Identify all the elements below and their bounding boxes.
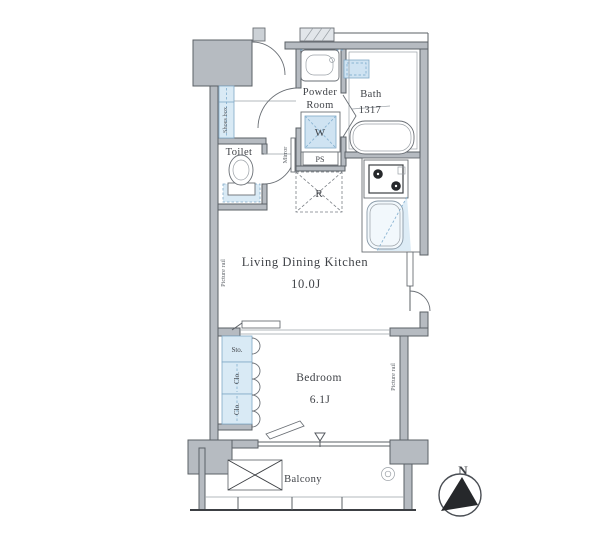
sliding-panel <box>266 421 304 439</box>
storage-label: Sto. <box>231 346 242 354</box>
picture-rail-left-label: Picture rail <box>220 259 227 287</box>
room-label-powder-2: Room <box>306 100 333 111</box>
floorplan-drawing: Shoes box Toilet Mirror Powder Room W <box>0 0 600 533</box>
closet-lower-label: Clo. <box>233 403 241 415</box>
pipe-space: PS <box>303 152 338 165</box>
mirror: Mirror <box>282 138 295 172</box>
bedroom-sliding-door <box>232 321 390 334</box>
refrigerator-space: R <box>296 172 342 212</box>
refrigerator-label: R <box>315 188 323 200</box>
mirror-label: Mirror <box>282 146 289 164</box>
picture-rail-right-label: Picture rail <box>390 363 397 391</box>
washer-label: W <box>315 127 326 139</box>
shoes-box-label: Shoes box <box>222 106 229 133</box>
closet-upper-label: Clo. <box>233 372 241 384</box>
bedroom: Bedroom 6.1J Picture rail <box>266 363 397 439</box>
center-marker-icon <box>315 433 325 441</box>
drain <box>382 468 395 481</box>
kitchen-sink <box>367 201 403 249</box>
room-label-bedroom: Bedroom <box>296 372 342 384</box>
pipe-space-label: PS <box>316 155 325 164</box>
service-door <box>407 252 430 311</box>
room-label-bath: Bath <box>360 89 382 100</box>
room-label-bedroom-size: 6.1J <box>310 394 331 406</box>
closets: Sto. Clo. Clo. <box>222 336 260 427</box>
room-label-powder-1: Powder <box>303 87 338 98</box>
room-label-ldk-size: 10.0J <box>291 277 321 291</box>
bathtub <box>350 121 414 154</box>
room-label-balcony: Balcony <box>284 474 322 485</box>
floorplan: Shoes box Toilet Mirror Powder Room W <box>0 0 600 533</box>
north-arrow-icon: N <box>439 463 481 516</box>
living-dining-kitchen: Living Dining Kitchen 10.0J Picture rail <box>220 255 368 291</box>
shoes-box: Shoes box <box>219 86 234 138</box>
kitchen-counter <box>362 158 420 252</box>
room-label-bath-size: 1317 <box>359 105 382 116</box>
room-label-ldk: Living Dining Kitchen <box>242 255 369 269</box>
washing-machine: W <box>301 112 340 152</box>
stove <box>364 160 408 198</box>
